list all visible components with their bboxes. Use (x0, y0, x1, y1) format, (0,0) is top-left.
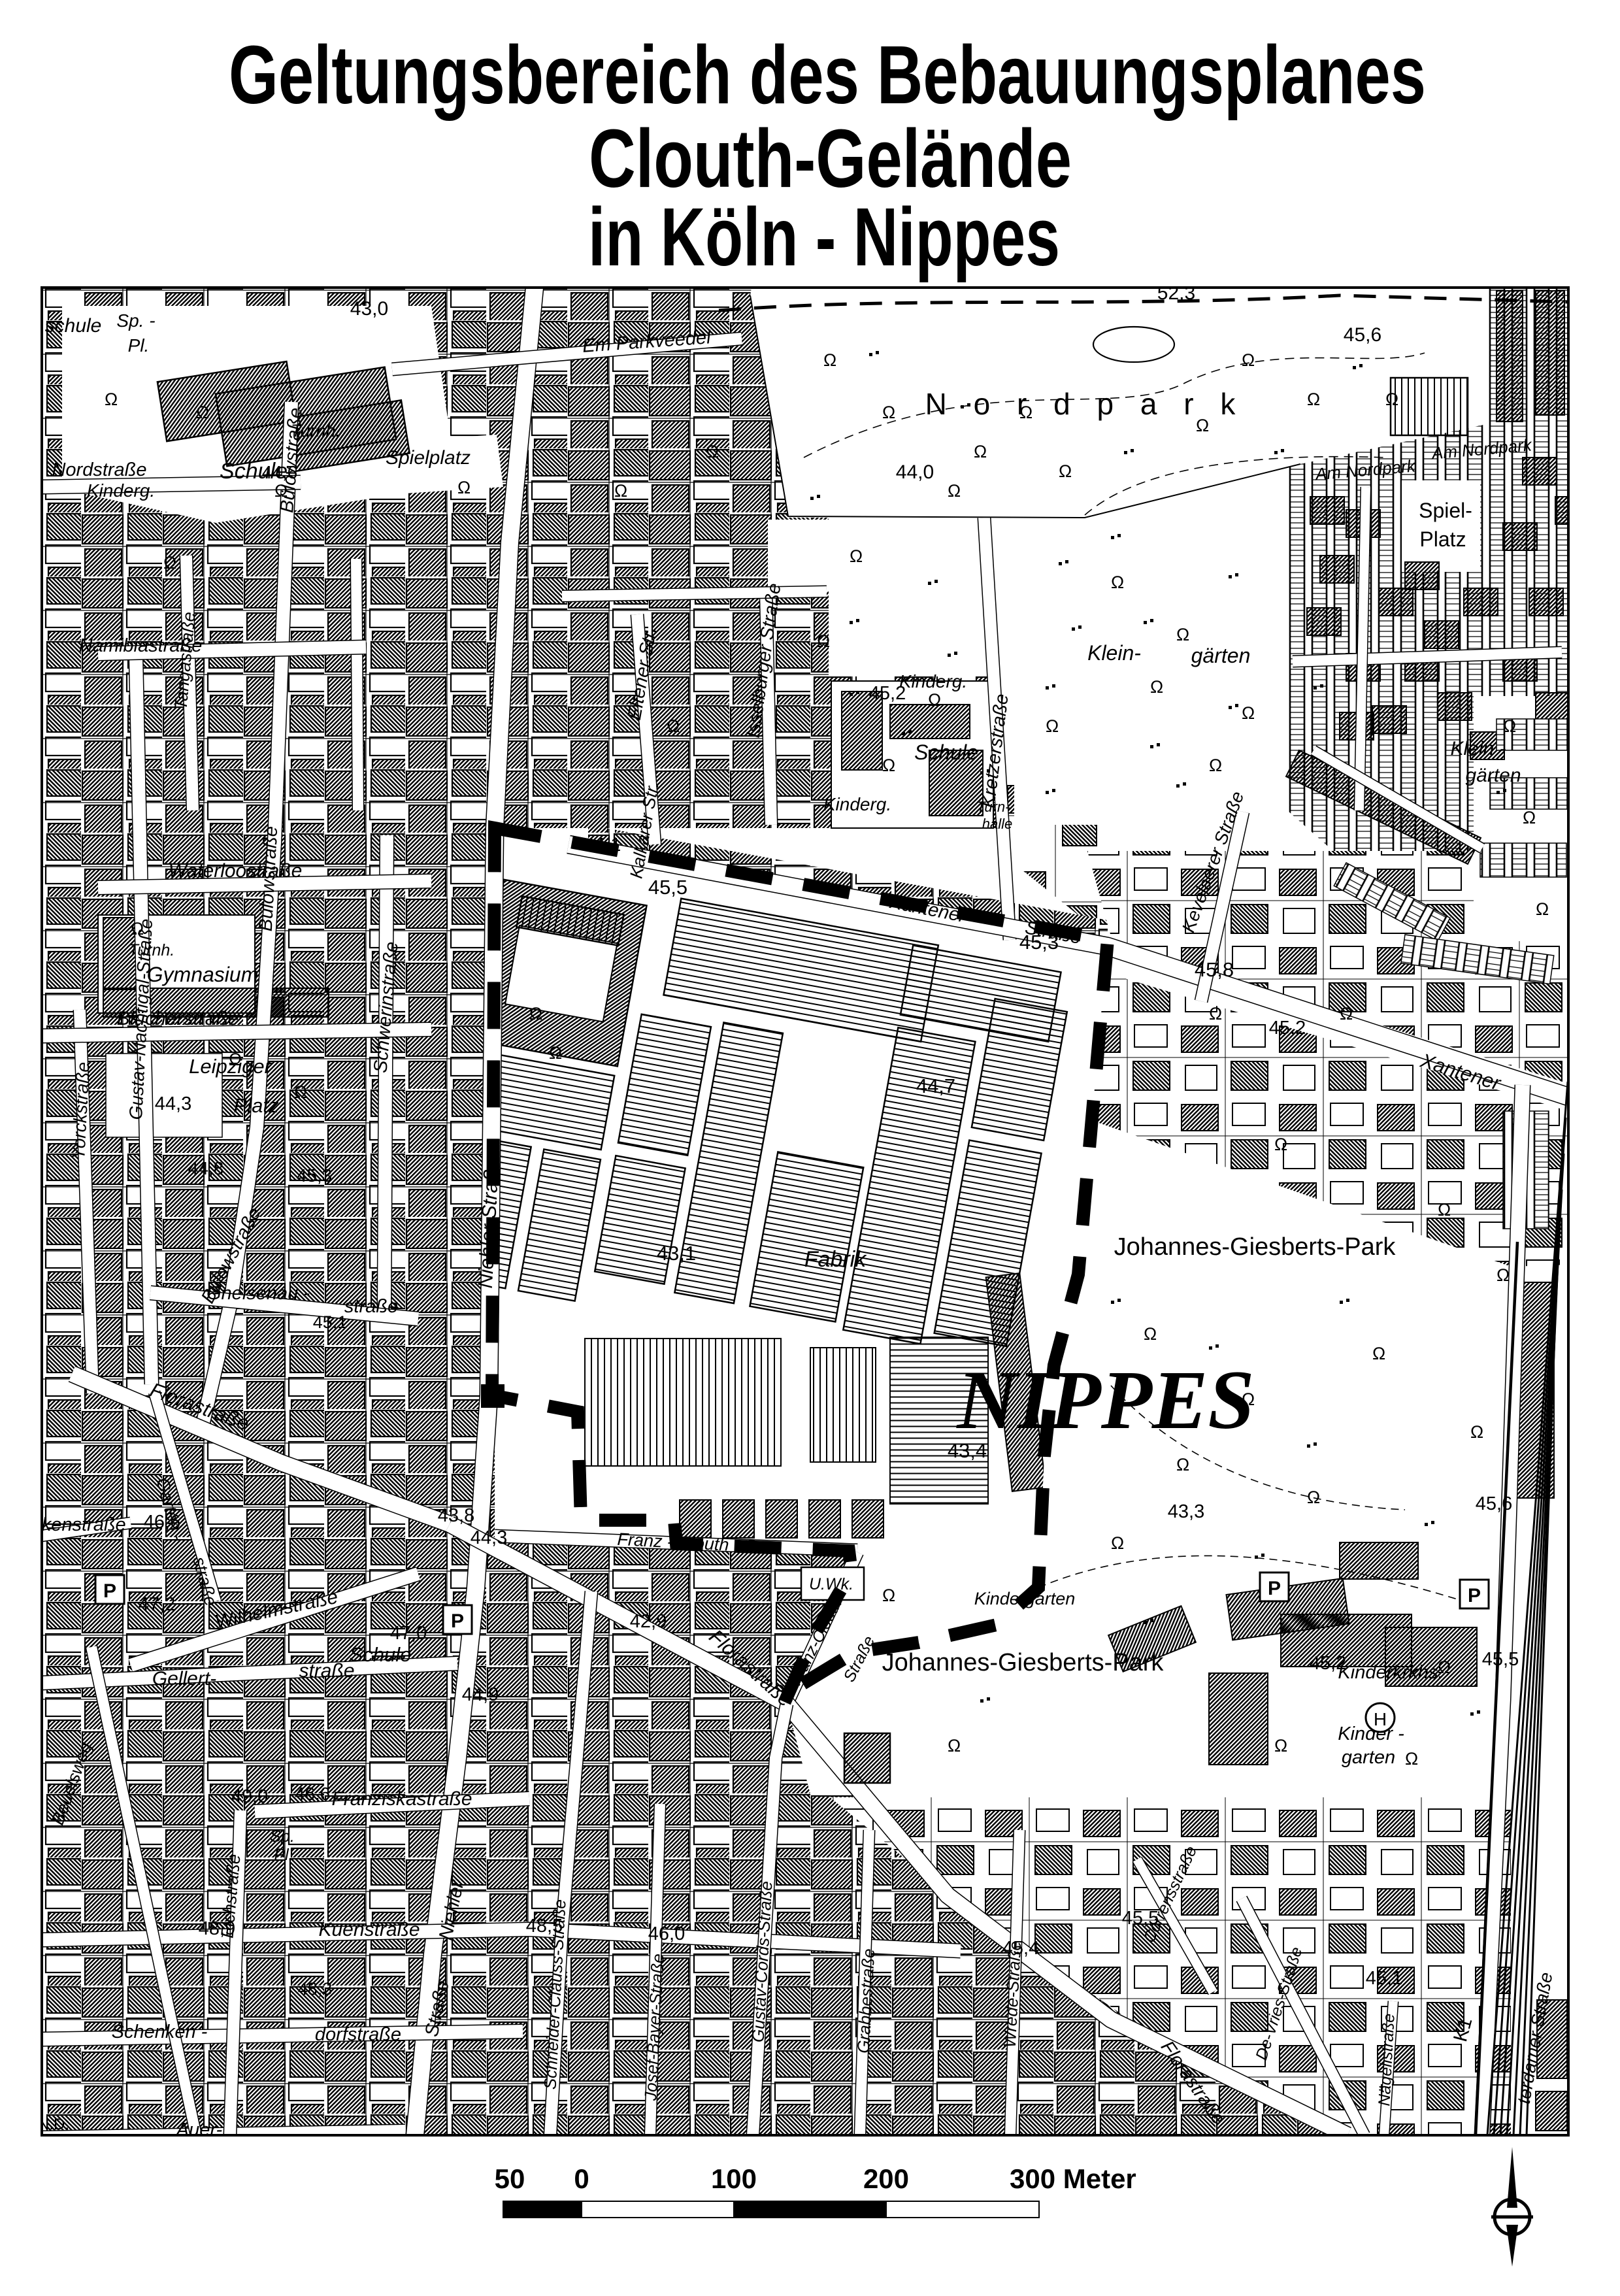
svg-text:Nordstraße: Nordstraße (52, 459, 146, 480)
svg-text:Ω: Ω (706, 442, 719, 461)
svg-text:Ω: Ω (1307, 1488, 1320, 1507)
svg-text:47,2: 47,2 (139, 1594, 175, 1615)
svg-text:Fabrik: Fabrik (804, 1247, 867, 1272)
svg-text:P: P (1268, 1578, 1281, 1599)
svg-text:Schenken -: Schenken - (112, 2021, 208, 2042)
svg-text:Ω: Ω (457, 478, 471, 497)
svg-text:Ω: Ω (163, 553, 176, 573)
svg-text:44,7: 44,7 (916, 1074, 955, 1097)
svg-text:Turnh.: Turnh. (129, 941, 174, 959)
svg-text:H: H (1374, 1709, 1387, 1729)
svg-text:Kuenstraße: Kuenstraße (318, 1919, 420, 1940)
svg-text:Gymnasium: Gymnasium (147, 963, 259, 986)
svg-text:Ω: Ω (1496, 1265, 1510, 1285)
svg-text:Ω: Ω (948, 1736, 961, 1755)
svg-text:Kinderkrkhs.: Kinderkrkhs. (1338, 1662, 1443, 1683)
svg-text:Spiel-: Spiel- (1419, 499, 1472, 522)
svg-text:Namibiastraße: Namibiastraße (79, 635, 203, 656)
svg-text:Ω: Ω (105, 390, 118, 409)
svg-text:P: P (451, 1610, 464, 1632)
svg-text:43,8: 43,8 (438, 1505, 474, 1526)
svg-text:49,0: 49,0 (231, 1786, 268, 1807)
svg-text:gärten: gärten (1465, 765, 1521, 786)
svg-text:Gneisenau -: Gneisenau - (207, 1283, 310, 1304)
svg-text:46,6: 46,6 (295, 1784, 331, 1804)
svg-text:Ω: Ω (1176, 625, 1189, 644)
svg-text:Schule: Schule (350, 1643, 412, 1666)
svg-text:Ω: Ω (549, 1043, 562, 1063)
svg-text:Kinderg.: Kinderg. (87, 480, 155, 501)
svg-text:Geltungsbereich des Bebauungsp: Geltungsbereich des Bebauungsplanes (229, 29, 1426, 121)
svg-text:Ω: Ω (1059, 461, 1072, 481)
svg-text:45,1: 45,1 (313, 1312, 348, 1332)
svg-text:43,1: 43,1 (657, 1242, 696, 1265)
svg-text:Gellert-: Gellert- (152, 1668, 216, 1689)
svg-text:P: P (1468, 1585, 1481, 1606)
svg-text:garten: garten (1342, 1747, 1395, 1768)
svg-text:Ω: Ω (1111, 1533, 1124, 1553)
svg-text:Ω: Ω (1046, 716, 1059, 736)
svg-text:Johannes-Giesberts-Park: Johannes-Giesberts-Park (1114, 1233, 1397, 1261)
svg-text:gärten: gärten (1191, 644, 1251, 667)
svg-text:Kindergarten: Kindergarten (974, 1589, 1076, 1608)
svg-text:Ω: Ω (294, 1082, 307, 1102)
svg-text:Johannes-Giesberts-Park: Johannes-Giesberts-Park (882, 1649, 1165, 1676)
svg-text:45,5: 45,5 (1482, 1649, 1519, 1670)
svg-text:Ω: Ω (1438, 1200, 1451, 1220)
svg-text:Ω: Ω (823, 350, 836, 370)
svg-text:straße: straße (344, 1296, 398, 1317)
svg-text:Blücherstraße: Blücherstraße (117, 1008, 239, 1029)
svg-text:43,0: 43,0 (350, 298, 388, 320)
svg-text:Ω: Ω (1150, 677, 1163, 697)
svg-text:Ω: Ω (1503, 716, 1516, 736)
svg-text:45,2: 45,2 (1269, 1018, 1306, 1039)
svg-text:Ω: Ω (850, 546, 863, 566)
svg-text:Ω: Ω (667, 716, 680, 736)
svg-text:Ω: Ω (1340, 1004, 1353, 1023)
svg-text:Ω: Ω (1242, 350, 1255, 370)
svg-text:44,3: 44,3 (471, 1527, 507, 1548)
svg-text:Kinderg.: Kinderg. (823, 794, 891, 814)
svg-text:43,3: 43,3 (1168, 1501, 1204, 1522)
svg-text:U.Wk.: U.Wk. (809, 1575, 853, 1593)
svg-text:45,8: 45,8 (1195, 958, 1234, 981)
svg-text:45,1: 45,1 (1366, 1968, 1402, 1989)
svg-text:dorfstraße: dorfstraße (315, 2024, 401, 2045)
svg-text:Ω: Ω (974, 442, 987, 461)
svg-text:Sp.: Sp. (270, 1827, 295, 1846)
svg-text:Klein -: Klein - (1450, 738, 1506, 759)
svg-text:Ω: Ω (1209, 1004, 1222, 1023)
svg-text:46,0: 46,0 (648, 1923, 685, 1944)
svg-text:45,3: 45,3 (297, 1165, 333, 1186)
svg-text:44,3: 44,3 (155, 1093, 191, 1114)
svg-text:Sp. -: Sp. - (116, 310, 155, 331)
svg-text:Ω: Ω (1242, 703, 1255, 723)
svg-text:Ω: Ω (948, 481, 961, 501)
svg-text:Pl.: Pl. (128, 335, 150, 356)
svg-text:Platz: Platz (1419, 527, 1466, 551)
svg-text:100: 100 (711, 2163, 757, 2194)
svg-text:47,0: 47,0 (390, 1623, 427, 1644)
svg-text:Ω: Ω (1274, 1736, 1287, 1755)
svg-text:43,4: 43,4 (948, 1439, 987, 1462)
svg-text:Franziskastraße: Franziskastraße (331, 1788, 472, 1810)
svg-text:Ω: Ω (1144, 1324, 1157, 1344)
svg-text:46,6: 46,6 (144, 1512, 180, 1533)
svg-text:Ω: Ω (529, 1004, 542, 1023)
svg-text:N o r d p a r k: N o r d p a r k (925, 387, 1245, 421)
svg-text:NIPPES: NIPPES (955, 1354, 1254, 1446)
svg-text:Ω: Ω (1523, 808, 1536, 827)
svg-text:Ω: Ω (1274, 1135, 1287, 1154)
svg-text:300 Meter: 300 Meter (1010, 2163, 1136, 2194)
svg-text:Ω: Ω (928, 690, 941, 710)
svg-text:P: P (103, 1580, 116, 1602)
svg-text:Ω: Ω (1536, 899, 1549, 919)
svg-text:Ω: Ω (1209, 756, 1222, 775)
svg-text:Ω: Ω (1405, 1749, 1418, 1769)
svg-text:Klein-: Klein- (1087, 641, 1141, 665)
svg-text:schule: schule (45, 315, 102, 337)
svg-text:Spielplatz: Spielplatz (386, 447, 471, 469)
svg-text:42,9: 42,9 (630, 1611, 667, 1632)
svg-text:44,9: 44,9 (462, 1684, 499, 1705)
svg-text:48,9: 48,9 (199, 1918, 235, 1939)
svg-text:45,6: 45,6 (1344, 324, 1381, 346)
svg-text:Pl.: Pl. (274, 1846, 293, 1864)
svg-text:halle: halle (982, 816, 1012, 832)
svg-text:straße: straße (299, 1660, 354, 1682)
svg-text:45,2: 45,2 (869, 683, 906, 704)
svg-text:Ω: Ω (1372, 1344, 1385, 1363)
svg-text:50: 50 (495, 2163, 525, 2194)
svg-text:44,8: 44,8 (188, 1158, 224, 1178)
svg-text:Ω: Ω (882, 403, 895, 422)
svg-text:200: 200 (863, 2163, 909, 2194)
svg-text:0: 0 (574, 2163, 589, 2194)
svg-text:Ω: Ω (614, 481, 627, 501)
svg-text:Ω: Ω (817, 631, 830, 651)
svg-text:Leipziger: Leipziger (189, 1055, 272, 1078)
svg-text:45,6: 45,6 (1476, 1493, 1512, 1514)
svg-text:Schule: Schule (914, 740, 978, 764)
svg-text:Kinderg.: Kinderg. (899, 671, 967, 691)
svg-text:45,5: 45,5 (648, 876, 687, 899)
svg-text:Ω: Ω (882, 1586, 895, 1605)
svg-text:Ω: Ω (1385, 390, 1398, 409)
svg-text:48,3: 48,3 (298, 1979, 333, 1999)
svg-text:Ω: Ω (1176, 1455, 1189, 1474)
svg-text:lkenstraße: lkenstraße (37, 1514, 125, 1535)
svg-text:Ω: Ω (1111, 573, 1124, 592)
svg-text:45,4: 45,4 (1002, 1938, 1039, 1959)
svg-text:Ω: Ω (882, 756, 895, 775)
svg-text:Ω: Ω (1470, 1422, 1483, 1442)
svg-text:44,1: 44,1 (584, 835, 621, 856)
svg-text:Ω: Ω (196, 403, 209, 422)
svg-text:44,0: 44,0 (896, 461, 934, 483)
svg-text:Ω: Ω (1307, 390, 1320, 409)
svg-text:Waterloostraße: Waterloostraße (169, 860, 303, 882)
svg-text:in Köln - Nippes: in Köln - Nippes (588, 191, 1060, 283)
svg-text:Platz: Platz (234, 1094, 279, 1117)
